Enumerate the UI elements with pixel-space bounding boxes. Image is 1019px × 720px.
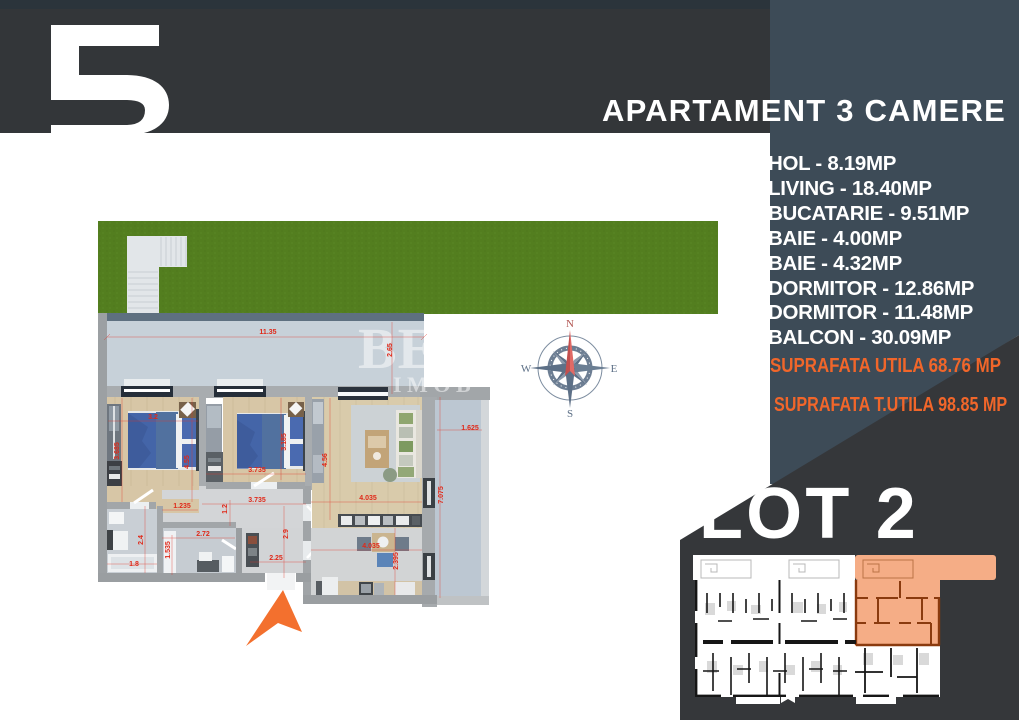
svg-text:N: N [566, 318, 574, 330]
svg-text:2.395: 2.395 [393, 552, 400, 570]
svg-text:I M O B: I M O B [393, 372, 471, 397]
svg-text:S: S [567, 408, 573, 420]
svg-text:1.535: 1.535 [165, 541, 172, 559]
svg-text:3.2: 3.2 [148, 414, 158, 421]
svg-text:1.8: 1.8 [129, 561, 139, 568]
svg-text:2.72: 2.72 [196, 531, 210, 538]
svg-text:4.55: 4.55 [184, 455, 191, 469]
svg-text:1.2: 1.2 [222, 504, 229, 514]
svg-text:1.235: 1.235 [173, 503, 191, 510]
svg-text:3.685: 3.685 [114, 442, 121, 460]
svg-text:11.35: 11.35 [259, 329, 276, 336]
svg-text:4.035: 4.035 [362, 543, 380, 550]
svg-text:3.735: 3.735 [248, 467, 266, 474]
svg-text:W: W [521, 363, 532, 375]
svg-text:4.035: 4.035 [359, 495, 377, 502]
svg-text:2.9: 2.9 [283, 529, 290, 539]
svg-text:E: E [611, 363, 618, 375]
svg-text:3.185: 3.185 [281, 433, 288, 451]
svg-text:2.25: 2.25 [269, 555, 283, 562]
svg-text:1.625: 1.625 [461, 425, 479, 432]
svg-text:7.075: 7.075 [438, 486, 445, 504]
svg-text:4.56: 4.56 [322, 453, 329, 467]
svg-text:2.65: 2.65 [387, 343, 394, 357]
svg-text:3.735: 3.735 [248, 497, 266, 504]
svg-text:2.4: 2.4 [138, 535, 145, 545]
